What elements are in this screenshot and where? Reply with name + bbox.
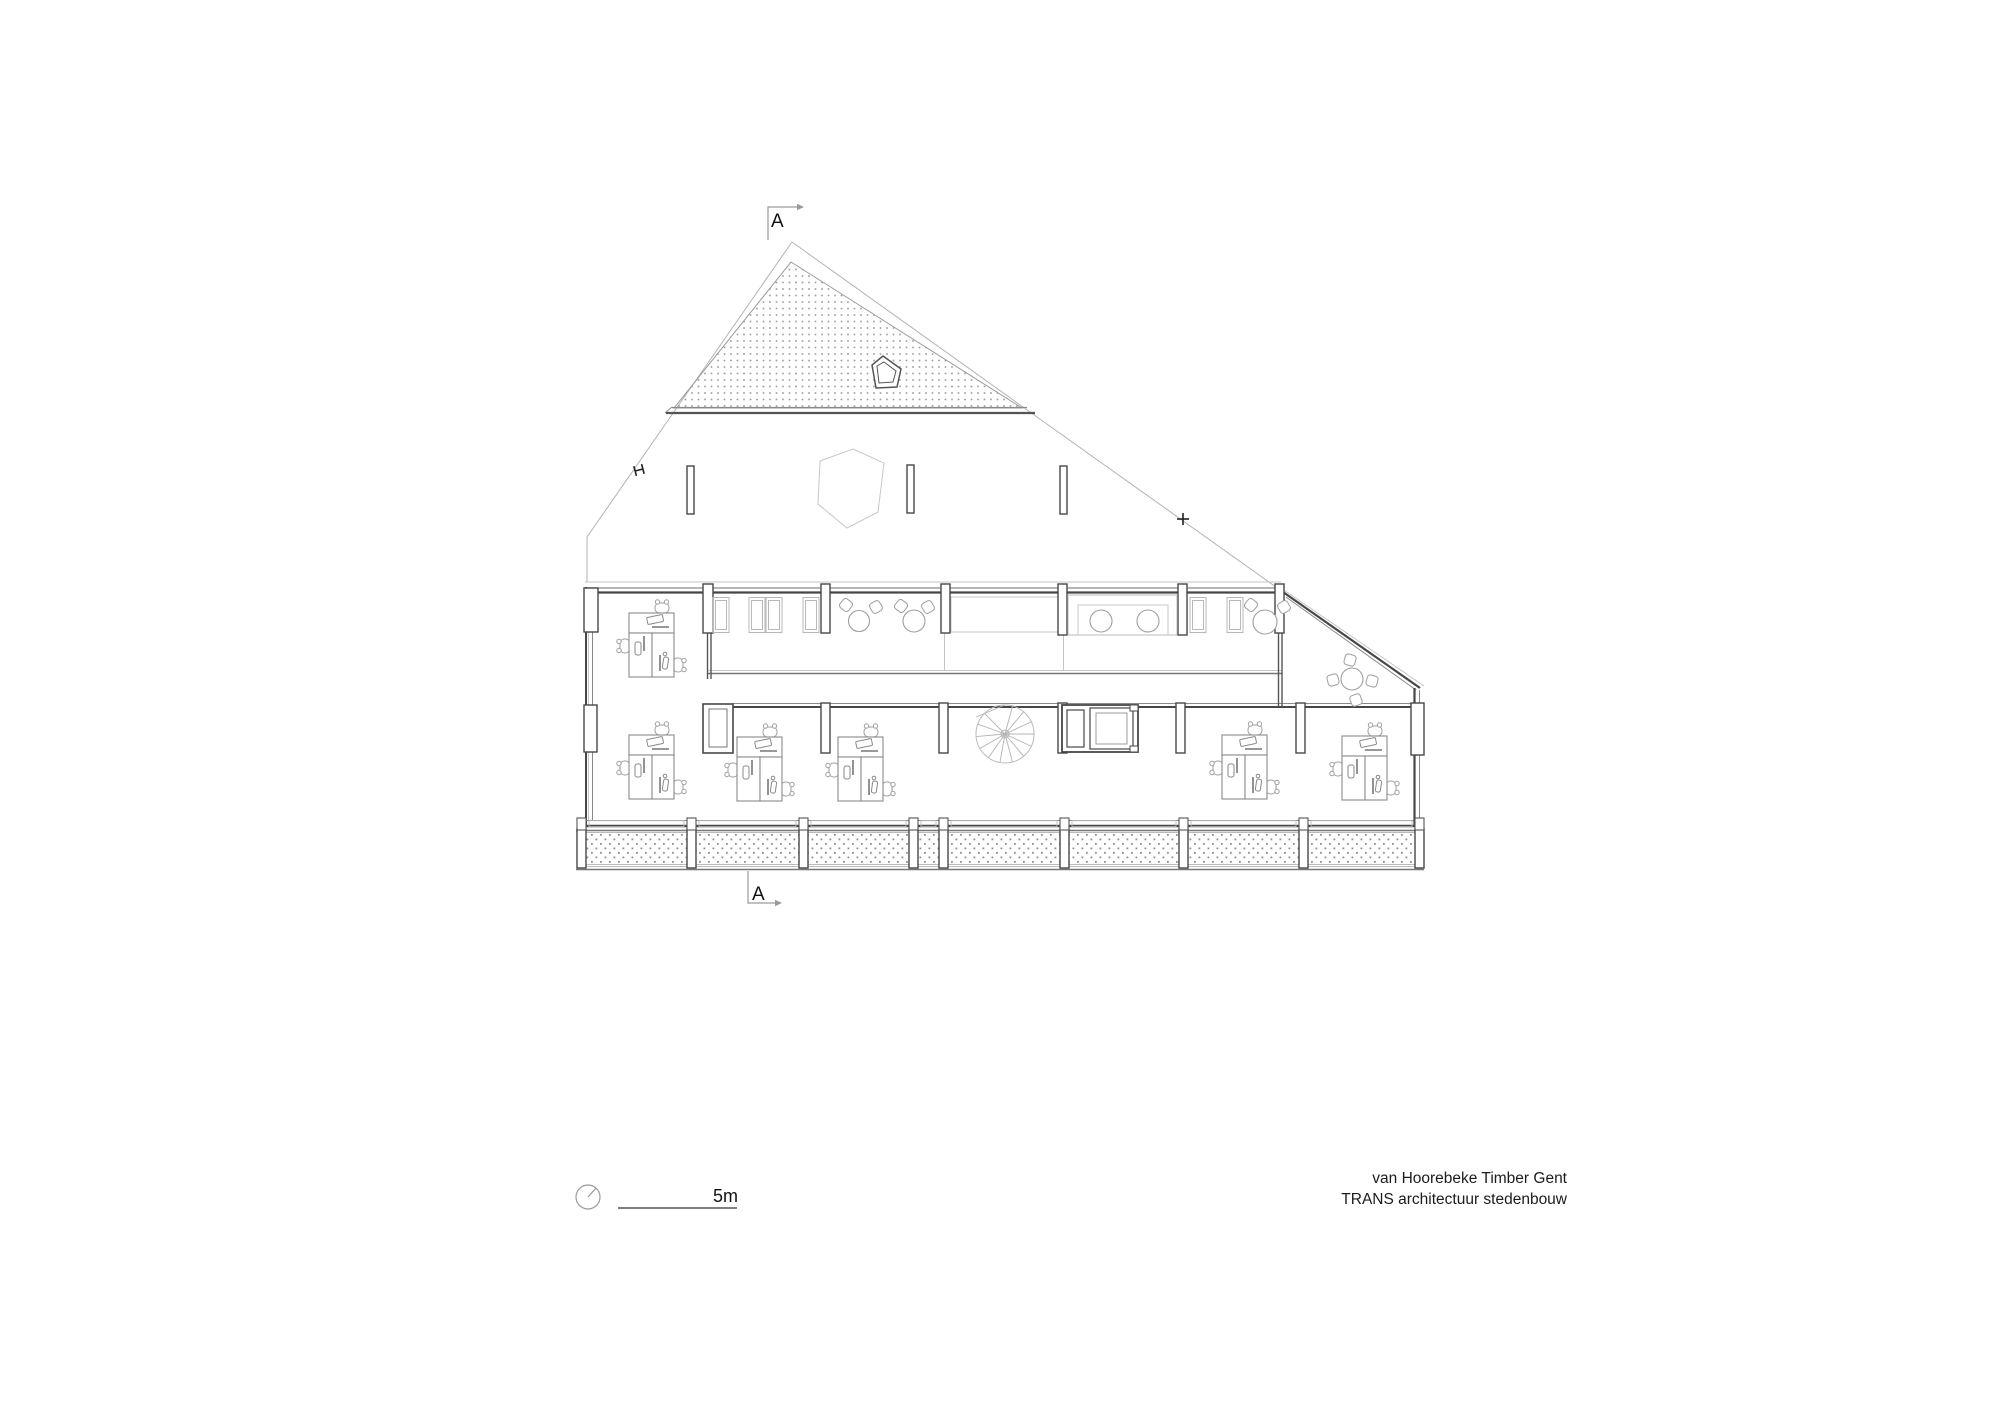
section-arrow-icon [775,900,782,906]
structural-column [1178,584,1187,635]
attic-wall-stub [907,465,914,513]
balcony-deck-panel [808,833,909,865]
meeting-room-inner-outline [951,597,1059,632]
desk-workstation [725,724,794,801]
project-title: van Hoorebeke Timber Gent [1167,1168,1567,1189]
facade-mullion [939,818,948,830]
attic-void [634,449,1189,528]
roof-hatch [674,262,1022,408]
balcony-post [909,829,918,868]
balcony-deck-panel [586,833,687,865]
facade-mullion [687,818,696,830]
balcony-deck [586,833,1415,865]
section-marker-label-top: A [771,211,784,232]
facade-mullion [909,818,918,830]
plus-marker-icon [1177,513,1189,525]
balcony-post [1179,829,1188,868]
structural-column [939,703,948,753]
stair-tread [1005,734,1031,746]
chair [1349,693,1363,707]
structural-column [703,584,713,633]
chair [893,598,908,613]
balcony-deck-panel [948,833,1060,865]
facade-mullion [1060,818,1069,830]
drawing-sheet: A [0,0,2000,1414]
round-table [849,611,870,632]
window-pane [713,598,729,633]
eaves-line [665,407,1035,413]
desk-workstation [826,724,895,801]
section-marker-label-bottom: A [752,884,765,905]
window-pane [749,598,765,633]
facade-mullion [1415,818,1424,830]
round-table [1137,610,1159,632]
elevator [1062,705,1138,752]
window-pane [766,598,782,633]
stair-tread [1005,722,1031,734]
stair-tread [984,713,1005,734]
window-pane [803,598,819,633]
window-panes [713,598,1243,633]
facade-mullion [799,818,808,830]
firm-name: TRANS architectuur stedenbouw [1167,1189,1567,1210]
structural-column [821,703,830,753]
title-block: van Hoorebeke Timber Gent TRANS architec… [1167,1168,1567,1210]
desk-workstation [617,600,686,677]
chair [868,599,883,614]
facade-mullion [1299,818,1308,830]
section-marker-top: A [768,204,804,240]
kitchenette-counter [1068,595,1177,635]
balcony-deck-panel [1188,833,1299,865]
existing-roof-opening [818,449,884,528]
stair-tread [978,724,1005,734]
balcony-deck-panel [1308,833,1415,865]
chair [1343,653,1356,666]
balcony-deck-panel [1069,833,1179,865]
balcony-post [1415,829,1424,868]
floor-plan-canvas: A [0,0,2000,1414]
balcony-post [799,829,808,868]
structural-column [1058,584,1067,635]
structural-column [821,584,830,633]
building-outline [587,242,1283,592]
north-needle-icon [588,1188,596,1197]
section-marker-bottom: A [748,871,782,906]
roof-plane [665,262,1035,413]
window-pane [1227,598,1243,633]
round-table [903,610,925,632]
chair [1243,597,1258,612]
balcony-post [939,829,948,868]
attic-wall-stubs [687,465,1067,514]
structural-column [1176,703,1185,753]
duct-shaft [703,704,733,753]
north-symbol [576,1185,600,1209]
chair [1365,674,1378,687]
attic-wall-stub [687,466,694,514]
round-tables [849,610,1364,690]
balcony-post [577,829,586,868]
balcony-deck-panel [918,833,939,865]
chair [1326,673,1339,686]
chair [838,597,853,612]
desk-workstation [1330,723,1399,800]
window-pane [1190,598,1206,633]
round-table [1341,668,1363,690]
structural-column [584,588,598,632]
attic-wall-stub [1060,466,1067,514]
desk-workstation [1210,722,1279,799]
balcony-post [1060,829,1069,868]
spiral-staircase [976,705,1034,763]
structural-column [584,705,597,752]
round-table [1090,610,1112,632]
balcony-post [1299,829,1308,868]
balcony-post [687,829,696,868]
desk-workstation [617,722,686,799]
ibeam-marker-icon [634,464,644,476]
facade-mullion [577,818,586,830]
structural-column [1296,703,1305,753]
chair [920,599,935,614]
structural-column [1411,703,1424,755]
scale-label: 5m [618,1186,738,1207]
facade-mullion [1179,818,1188,830]
round-table [1253,610,1277,634]
balcony-deck-panel [696,833,799,865]
section-arrow-icon [797,204,804,210]
structural-column [941,584,950,633]
